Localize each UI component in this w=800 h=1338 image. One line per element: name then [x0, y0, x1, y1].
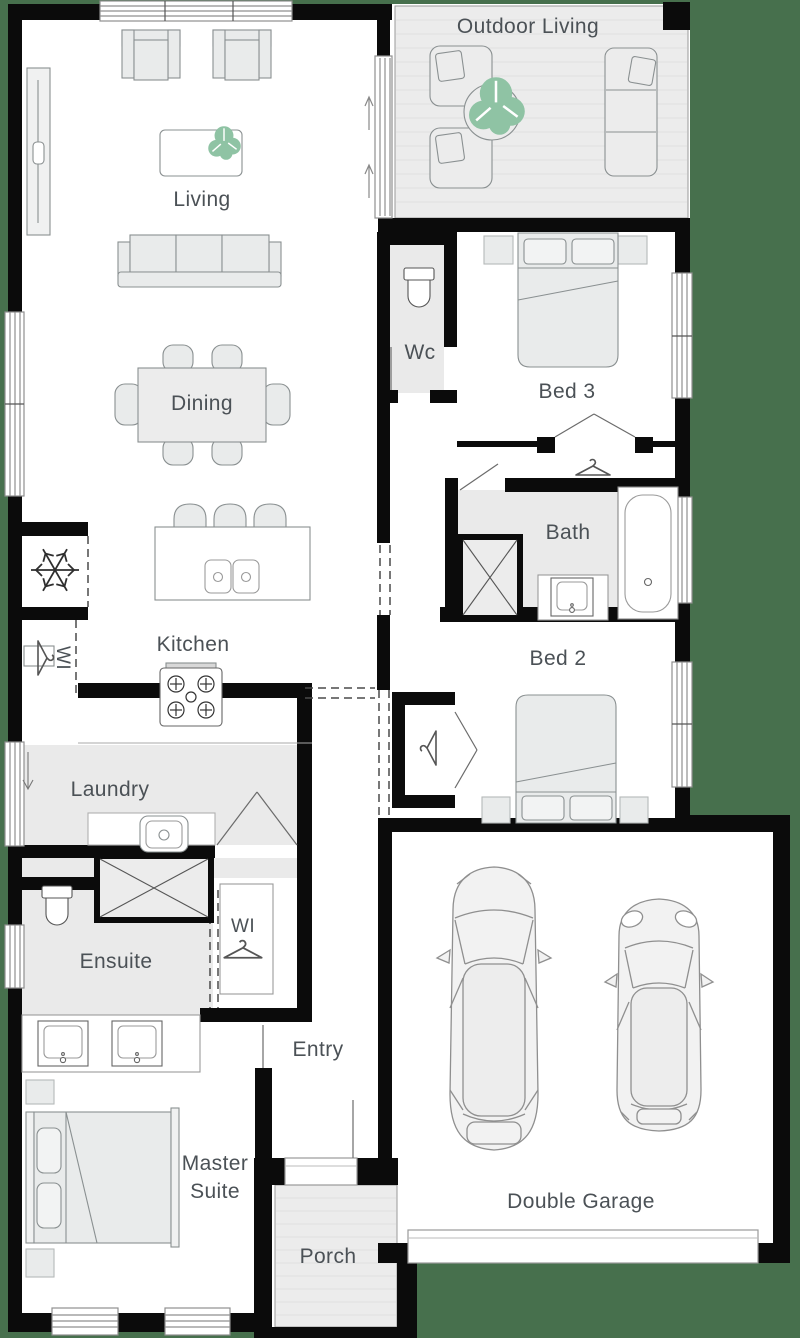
shower-icon: [460, 537, 520, 618]
room-label-ensuite: Ensuite: [80, 950, 153, 974]
window: [5, 925, 24, 988]
bath-vanity-icon: [538, 575, 608, 620]
room-label-bed3: Bed 3: [539, 380, 596, 404]
room-label-wc: Wc: [404, 341, 435, 365]
room-label-double-garage: Double Garage: [507, 1190, 655, 1214]
armchair-icon: [213, 30, 271, 80]
room-label-bath: Bath: [546, 521, 591, 545]
outdoor-sofa-icon: [605, 48, 657, 176]
sofa-icon: [118, 235, 281, 287]
car-icon: [437, 867, 551, 1150]
armchair-icon: [122, 30, 180, 80]
room-label-living: Living: [173, 188, 230, 212]
master-suite-line2: Suite: [182, 1178, 249, 1206]
floor-plan-graphics: [0, 0, 800, 1338]
vanity-icon: [22, 1015, 200, 1072]
window: [672, 662, 692, 787]
bed-icon: [516, 695, 616, 823]
car-icon: [605, 899, 713, 1131]
window: [52, 1308, 118, 1335]
laundry-sink-icon: [140, 816, 188, 852]
room-label-master-suite: Master Suite: [182, 1150, 249, 1206]
room-label-kitchen: Kitchen: [157, 633, 230, 657]
sliding-door: [375, 56, 392, 218]
window: [672, 273, 692, 398]
room-label-walk-in-pantry: WI: [51, 646, 73, 670]
tv-unit-icon: [27, 68, 50, 235]
window: [100, 1, 292, 21]
cooktop-icon: [160, 663, 222, 726]
bathtub-icon: [618, 487, 678, 619]
room-label-bed2: Bed 2: [530, 647, 587, 671]
window: [165, 1308, 230, 1335]
room-label-outdoor-living: Outdoor Living: [457, 15, 599, 39]
room-label-walk-in-robe: WI: [231, 916, 255, 938]
window: [5, 312, 24, 496]
room-label-entry: Entry: [292, 1038, 343, 1062]
shower-icon: [97, 856, 211, 920]
bed-icon: [26, 1108, 179, 1247]
wi-shelf-icon: [220, 884, 273, 994]
bed-icon: [518, 233, 618, 367]
kitchen-island-icon: [155, 527, 310, 600]
floor-plan: Outdoor Living Living Dining Wc Bed 3 Ba…: [0, 0, 800, 1338]
room-label-porch: Porch: [300, 1245, 357, 1269]
island-stool-icon: [174, 504, 286, 527]
pantry-shelf-icon: [24, 646, 54, 666]
master-suite-line1: Master: [182, 1150, 249, 1178]
garage-door: [408, 1230, 758, 1263]
basin-icon: [112, 1021, 162, 1066]
window: [5, 742, 24, 846]
room-label-dining: Dining: [171, 392, 233, 416]
basin-icon: [38, 1021, 88, 1066]
room-label-laundry: Laundry: [71, 778, 150, 802]
